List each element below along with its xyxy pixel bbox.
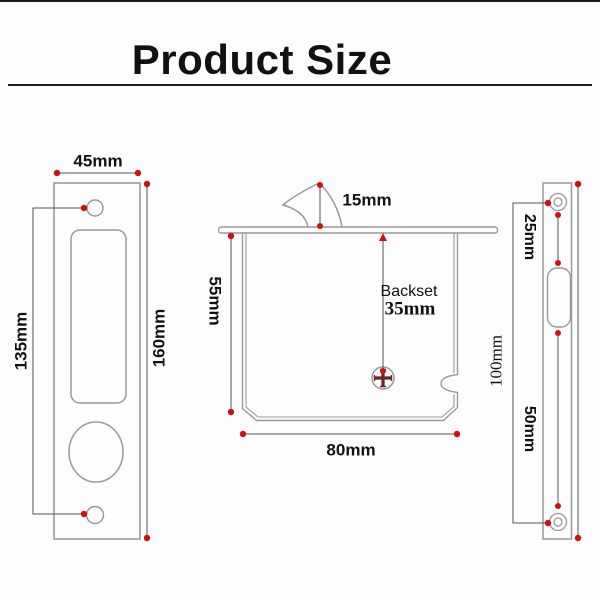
- lock-dimension-drawing: [0, 0, 600, 600]
- faceplate-dimension-lines: [33, 170, 150, 541]
- strike-bottom-screw-hole-icon: [550, 514, 567, 531]
- faceplate-top-screw-hole-icon: [87, 200, 103, 216]
- lock-body-outline: [219, 183, 498, 421]
- strike-screw-to-slot-label: 25mm: [521, 214, 537, 260]
- faceplate-width-label: 45mm: [73, 153, 122, 170]
- faceplate-recess: [71, 230, 126, 403]
- strike-plate-outline: [543, 183, 572, 539]
- faceplate-height-label: 160mm: [151, 309, 168, 368]
- product-size-diagram: Product Size: [0, 0, 600, 600]
- strike-screw-spacing-label: 100mm: [488, 335, 505, 387]
- strike-slot: [548, 268, 571, 327]
- faceplate-outline: [54, 183, 140, 539]
- latch-hook-icon: [283, 183, 342, 227]
- strike-top-screw-hole-icon: [550, 194, 567, 211]
- backset-arrow-icon: [379, 233, 387, 241]
- faceplate-bottom-screw-hole-icon: [87, 507, 104, 524]
- faceplate-screw-spacing-label: 135mm: [13, 312, 30, 371]
- faceplate-thumbturn-hole-icon: [69, 422, 123, 482]
- hook-height-label: 15mm: [342, 192, 391, 209]
- body-width-label: 80mm: [326, 442, 375, 459]
- lock-faceplate-bar: [219, 227, 498, 233]
- backset-value-label: 35mm: [385, 300, 436, 319]
- body-height-label: 55mm: [207, 276, 224, 325]
- strike-slot-to-screw-label: 50mm: [521, 406, 537, 452]
